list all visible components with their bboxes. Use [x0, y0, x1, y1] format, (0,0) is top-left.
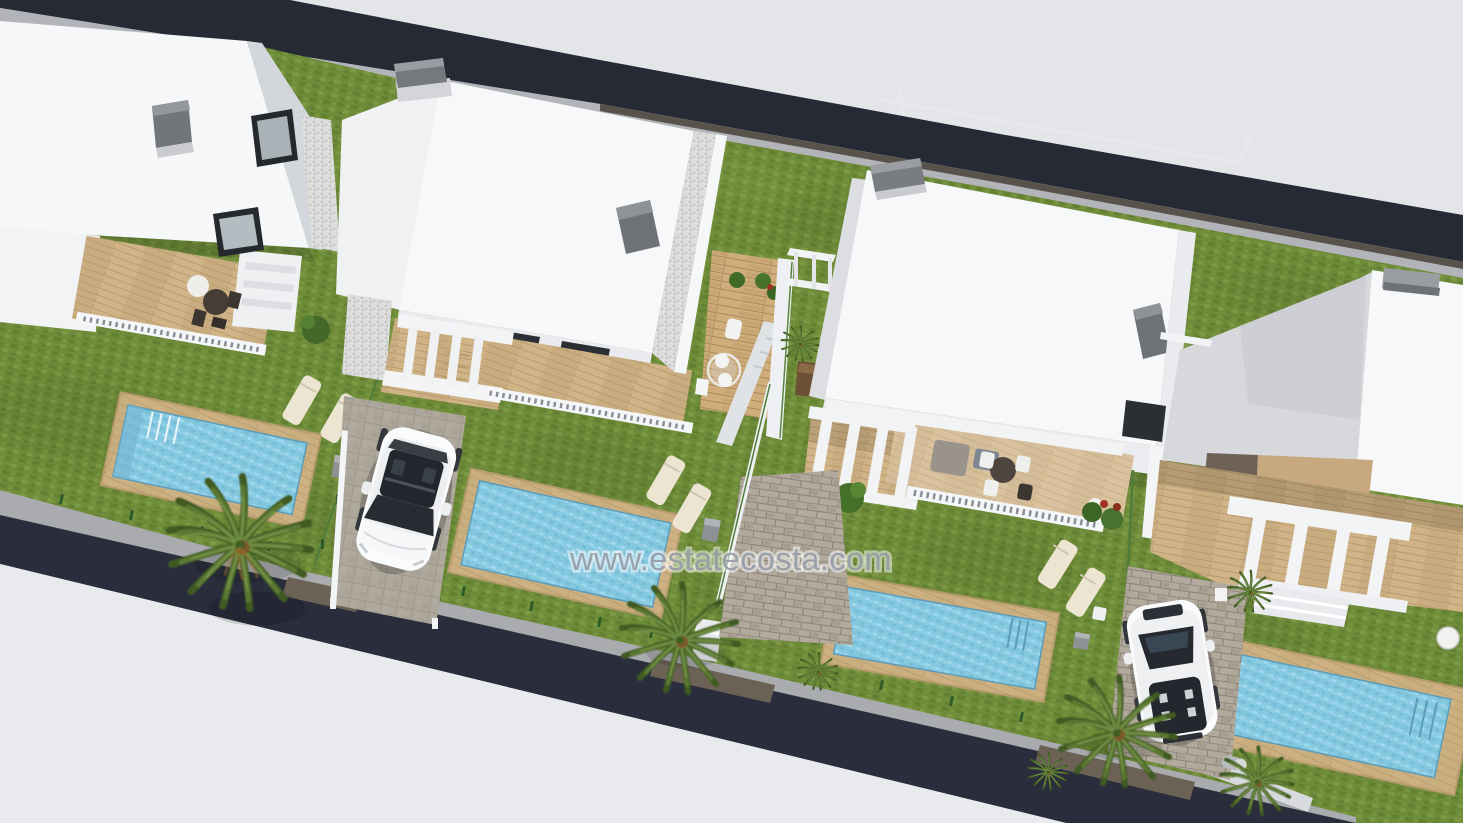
- svg-text:www.estatecosta.com: www.estatecosta.com: [569, 541, 892, 577]
